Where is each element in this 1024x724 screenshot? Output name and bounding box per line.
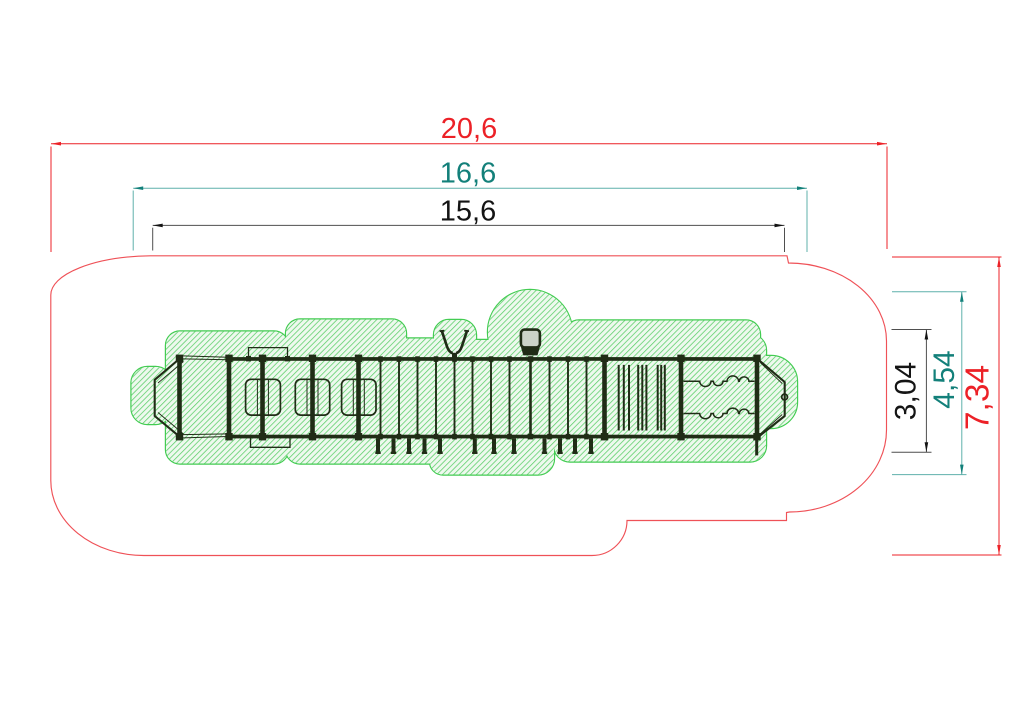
svg-text:3,04: 3,04	[890, 362, 923, 420]
svg-text:15,6: 15,6	[440, 196, 496, 228]
svg-text:4,54: 4,54	[928, 350, 961, 408]
svg-text:20,6: 20,6	[441, 113, 497, 145]
svg-text:7,34: 7,34	[960, 365, 997, 430]
svg-text:16,6: 16,6	[440, 158, 496, 190]
